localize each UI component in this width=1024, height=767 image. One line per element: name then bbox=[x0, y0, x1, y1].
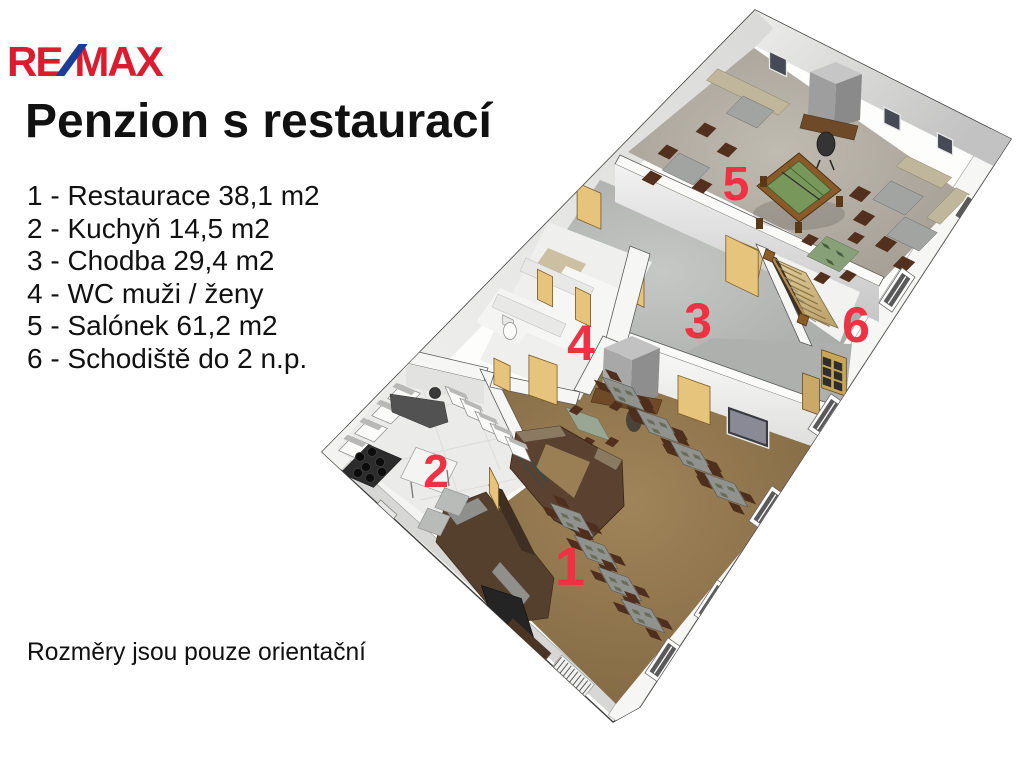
svg-text:4: 4 bbox=[567, 315, 595, 371]
svg-text:2: 2 bbox=[423, 445, 449, 497]
svg-text:1: 1 bbox=[555, 537, 585, 597]
svg-text:3: 3 bbox=[684, 293, 712, 349]
svg-text:5: 5 bbox=[723, 158, 750, 211]
svg-text:6: 6 bbox=[842, 297, 870, 353]
